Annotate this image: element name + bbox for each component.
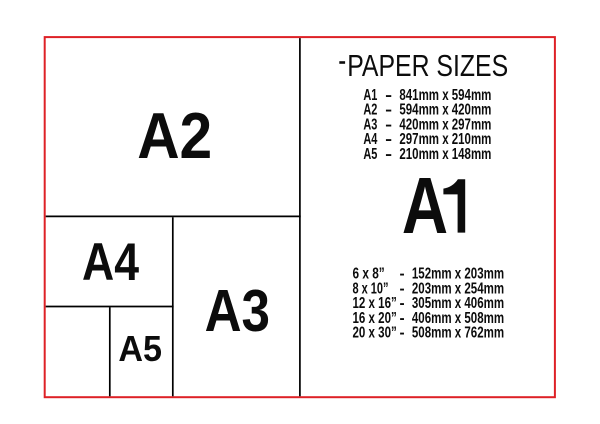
svg-text:A5: A5 bbox=[363, 146, 377, 163]
svg-text:A5: A5 bbox=[118, 329, 162, 369]
svg-text:A3: A3 bbox=[205, 277, 270, 344]
svg-text:A: A bbox=[402, 161, 448, 250]
svg-text:A4: A4 bbox=[82, 233, 139, 292]
svg-text:PAPER SIZES: PAPER SIZES bbox=[347, 48, 508, 83]
svg-text:A2: A2 bbox=[137, 99, 212, 172]
svg-text:508mm x 762mm: 508mm x 762mm bbox=[412, 325, 504, 342]
svg-text:-: - bbox=[385, 146, 392, 163]
svg-text:-: - bbox=[400, 325, 405, 342]
svg-text:20 x 30”: 20 x 30” bbox=[353, 325, 397, 342]
